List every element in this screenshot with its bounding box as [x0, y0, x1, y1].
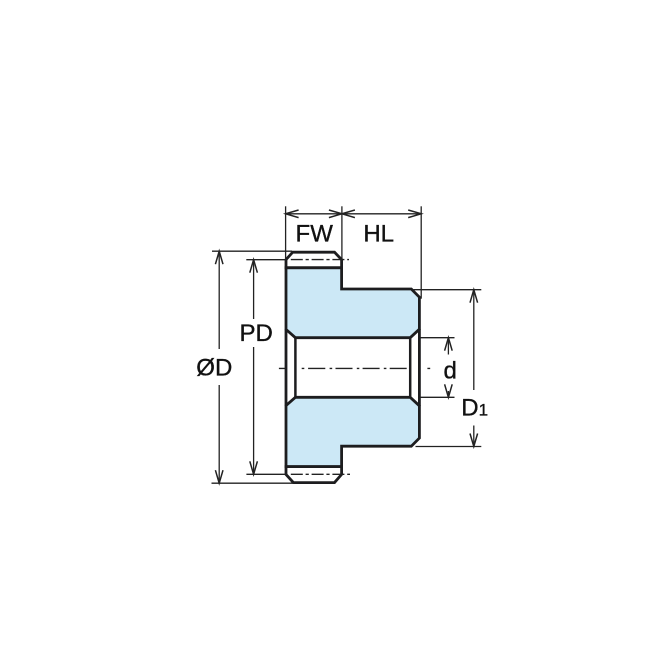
- svg-text:PD: PD: [240, 320, 273, 347]
- svg-text:FW: FW: [296, 220, 334, 247]
- svg-text:ØD: ØD: [196, 355, 232, 382]
- svg-text:HL: HL: [363, 220, 394, 247]
- svg-text:d: d: [444, 357, 457, 384]
